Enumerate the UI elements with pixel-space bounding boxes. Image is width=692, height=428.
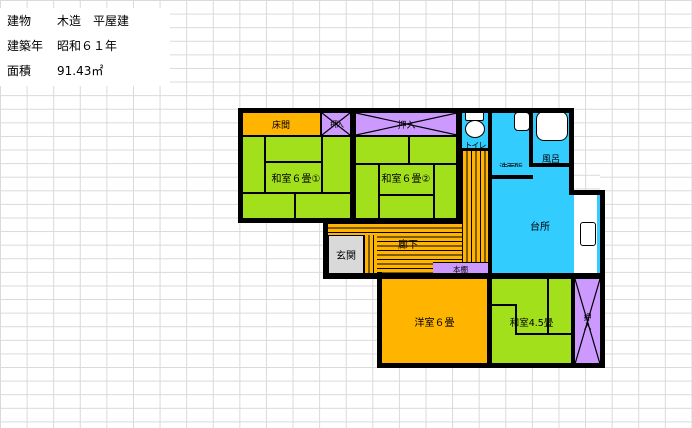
washbasin-icon: [514, 112, 530, 131]
room-tokonoma[interactable]: 床間: [242, 113, 322, 137]
wall-washroom-bath: [529, 108, 533, 167]
area-label: 面積: [0, 62, 49, 79]
wall-room2-right: [456, 108, 462, 223]
room-washitsu1-label: 和室６畳①: [242, 137, 350, 218]
toilet-bowl-icon: [465, 120, 485, 138]
bathtub-icon: [536, 111, 568, 141]
area-value: 91.43㎡: [49, 62, 103, 79]
room-yoshitsu[interactable]: 洋室６畳: [382, 279, 487, 364]
room-entrance-label: 玄関: [329, 236, 363, 273]
wall-left: [238, 108, 243, 223]
wall-bath-right: [569, 108, 574, 195]
room-entrance[interactable]: 玄関: [328, 235, 364, 274]
closet-x-icon: [575, 279, 600, 364]
wall-toilet-bottom: [462, 148, 488, 151]
room-tokonoma-label: 床間: [242, 113, 320, 135]
room-closet-small[interactable]: 押入: [322, 113, 350, 137]
room-yoshitsu-label: 洋室６畳: [382, 279, 487, 364]
hallway-label: 廊下: [386, 233, 430, 253]
info-row-year: 建築年 昭和６１年: [0, 33, 170, 58]
room-washitsu45-label: 和室4.5畳: [492, 279, 571, 364]
closet-x-icon: [322, 113, 350, 135]
wall-bath-bottom: [529, 163, 574, 167]
kitchen-window-icon: [580, 222, 596, 246]
room-washitsu1[interactable]: 和室６畳①: [242, 137, 350, 218]
room-closet-top[interactable]: 押入: [356, 113, 457, 137]
wall-washitsu45-closet: [571, 279, 575, 364]
room-washitsu2[interactable]: 和室６畳②: [356, 137, 456, 218]
wall-washroom-bottom: [488, 175, 533, 179]
building-value: 木造 平屋建: [49, 12, 129, 29]
room-washitsu45[interactable]: 和室4.5畳: [492, 279, 571, 364]
wall-top: [238, 108, 574, 113]
kitchen-counter[interactable]: [574, 195, 600, 275]
year-value: 昭和６１年: [49, 37, 117, 54]
wall-room-divider: [350, 108, 356, 223]
outside-notch: [574, 165, 600, 191]
wall-yoshitsu-left: [377, 272, 382, 368]
hallway-vertical-branch[interactable]: [462, 151, 488, 262]
room-toilet[interactable]: トイレ: [462, 113, 488, 151]
wall-middle-horizontal: [323, 273, 605, 279]
year-label: 建築年: [0, 37, 49, 54]
wall-yoshitsu-washitsu45: [487, 279, 492, 364]
info-row-building: 建物 木造 平屋建: [0, 8, 170, 33]
building-label: 建物: [0, 12, 49, 29]
wall-washroom-left: [488, 108, 492, 179]
room-closet-right[interactable]: 押入: [575, 279, 600, 364]
room-kitchen-label: 台所: [510, 215, 570, 235]
wall-kitchen-left: [488, 179, 492, 275]
closet-x-icon: [356, 113, 457, 135]
spreadsheet-canvas: { "info": { "rows": [ {"label": "建物", "v…: [0, 0, 692, 428]
wall-right: [600, 190, 605, 368]
building-info-box: 建物 木造 平屋建 建築年 昭和６１年 面積 91.43㎡: [0, 8, 170, 86]
room-bath[interactable]: 風呂: [533, 113, 569, 165]
info-row-area: 面積 91.43㎡: [0, 58, 170, 83]
wall-corridor-left: [323, 218, 328, 278]
entrance-step-stripes: [364, 235, 377, 274]
room-washitsu2-label: 和室６畳②: [356, 137, 456, 218]
